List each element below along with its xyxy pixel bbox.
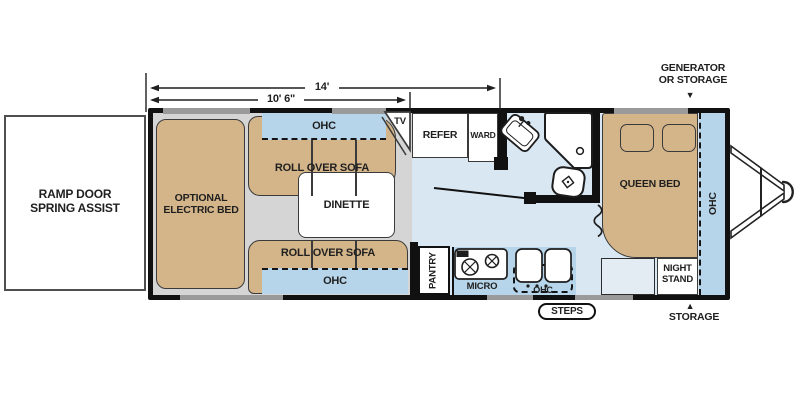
dinette-label: DINETTE [298,199,395,212]
roll-over-sofa-bottom-label: ROLL OVER SOFA [248,247,408,260]
hitch-tongue-icon [731,146,793,238]
down-arrow-icon: ▼ [682,90,698,100]
pillow [662,124,696,152]
galley-wall [410,242,418,300]
ohc-top-label: OHC [262,120,386,133]
refer-label: REFER [412,129,468,141]
ramp-door-label: RAMP DOOR SPRING ASSIST [4,188,146,216]
queen-bed-label: QUEEN BED [602,178,698,190]
micro-label: MICRO [452,282,512,293]
bathroom-wall-hinge [524,192,536,204]
generator-callout: GENERATOR OR STORAGE [637,62,749,86]
bathroom-wall [533,195,600,203]
ohc-bottom-label: OHC [262,275,408,288]
kitchen-ohc-label: OHC [512,285,574,295]
electric-bed-label: OPTIONAL ELECTRIC BED [151,192,251,216]
night-stand-label: NIGHT STAND [657,264,698,286]
ohc-cabinet-right: OHC [699,113,725,295]
ohc-right-label: OHC [701,113,725,295]
pantry-cabinet: PANTRY [418,246,450,295]
window [332,108,386,114]
window [614,108,688,114]
floorplan-canvas: RAMP DOOR SPRING ASSIST OHC OPTIONAL ELE… [0,0,800,400]
dimension-label-14ft: 14' [305,81,339,94]
steps-label: STEPS [538,306,596,318]
storage-callout: STORAGE [650,311,738,323]
bed-base-bench [601,258,655,295]
entry-door [575,295,633,301]
tv-label: TV [390,117,410,128]
window [180,295,283,301]
bathroom-wall [592,113,600,202]
bathroom-wall-hinge [494,157,508,170]
ward-label: WARD [468,131,498,141]
window [163,108,250,114]
roll-over-sofa-top-label: ROLL OVER SOFA [248,162,396,175]
up-arrow-icon: ▲ [682,301,698,311]
pillow [620,124,654,152]
pantry-label: PANTRY [420,248,448,293]
dimension-label-10ft6: 10' 6" [258,93,304,106]
bathroom-wall [498,113,507,163]
